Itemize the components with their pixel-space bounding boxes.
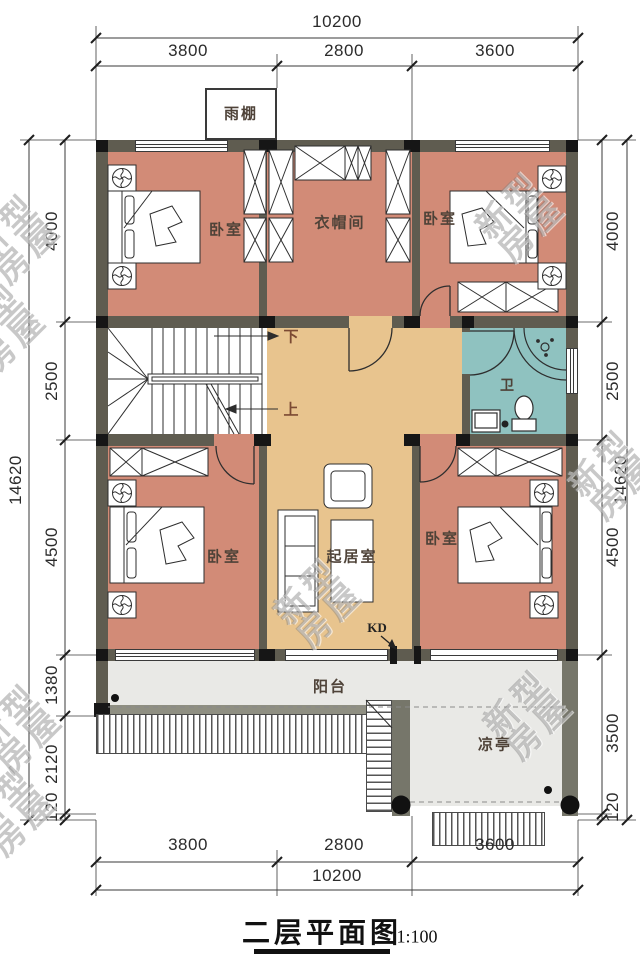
wall-int-bl-living xyxy=(259,434,267,661)
hall-living-connector-floor xyxy=(267,434,412,446)
wall-mid1-a xyxy=(96,316,267,328)
wall-left-balcony-stub xyxy=(96,661,108,705)
wall-int-living-br xyxy=(412,434,420,661)
column xyxy=(566,649,578,661)
sliding-window-bottom-right xyxy=(430,649,558,661)
column xyxy=(96,434,108,446)
bathroom-floor xyxy=(470,328,566,434)
kd-door-jamb xyxy=(390,646,397,664)
column xyxy=(259,316,275,328)
bedroom-bl-door-opening xyxy=(214,434,254,446)
wall-mid2-a xyxy=(96,434,214,446)
kd-door-jamb xyxy=(414,646,421,664)
column xyxy=(566,140,578,152)
stair-floor xyxy=(108,328,267,434)
dim-top-seg-2: 3600 xyxy=(475,41,515,61)
dim-top-seg-0: 3800 xyxy=(168,41,208,61)
stair-down-label: 下 xyxy=(283,326,298,347)
drawing-title: 二层平面图 xyxy=(242,911,402,951)
stair-up-label: 上 xyxy=(283,399,298,420)
wall-left xyxy=(96,140,108,661)
column xyxy=(96,140,108,152)
cloakroom-label: 衣帽间 xyxy=(314,212,365,233)
wall-int-tl-cloak xyxy=(259,140,267,328)
watermark: 新型房屋 xyxy=(0,190,68,291)
column xyxy=(96,316,108,328)
balcony-label: 阳台 xyxy=(313,676,347,697)
pavilion-wall-right xyxy=(562,661,578,816)
column xyxy=(566,434,578,446)
pavilion-steps xyxy=(366,700,392,812)
bedroom-bottom-left-label: 卧室 xyxy=(207,546,241,567)
dim-top-seg-1: 2800 xyxy=(324,41,364,61)
balcony-railing xyxy=(96,714,392,754)
window-top-left xyxy=(135,140,228,152)
dim-left-overall: 14620 xyxy=(6,455,26,505)
title-underline xyxy=(254,949,390,954)
bedroom-top-right-label: 卧室 xyxy=(423,208,457,229)
dim-right-seg-4: 120 xyxy=(603,792,623,822)
sliding-door-living xyxy=(285,649,388,661)
column xyxy=(259,140,277,152)
wall-mid2-b xyxy=(456,434,578,446)
dim-right-seg-2: 4500 xyxy=(603,527,623,567)
dim-right-seg-0: 4000 xyxy=(603,211,623,251)
bedroom-bottom-right-label: 卧室 xyxy=(425,528,459,549)
drawing-scale: 1:100 xyxy=(396,927,437,948)
dim-bottom-seg-1: 2800 xyxy=(324,835,364,855)
column xyxy=(404,434,420,446)
dim-top-total: 10200 xyxy=(312,12,362,32)
column xyxy=(259,649,275,661)
kd-label: KD xyxy=(367,620,387,636)
column xyxy=(96,649,108,661)
bedroom-tr-door-opening xyxy=(420,316,450,328)
column xyxy=(456,434,470,446)
pavilion-wall-left xyxy=(392,700,410,816)
column xyxy=(254,434,271,446)
dim-bottom-seg-0: 3800 xyxy=(168,835,208,855)
window-bathroom xyxy=(566,348,578,394)
dim-bottom-seg-2: 3600 xyxy=(475,835,515,855)
bathroom-door-opening xyxy=(462,332,470,374)
floor-plan: 雨棚 卧室 衣帽间 卧室 卫 起居室 卧室 卧室 阳台 凉亭 下 上 KD 10… xyxy=(0,0,640,963)
canopy-label: 雨棚 xyxy=(224,103,258,124)
dim-left-seg-1: 2500 xyxy=(42,361,62,401)
dim-left-seg-2: 4500 xyxy=(42,527,62,567)
dim-right-seg-3: 3500 xyxy=(603,713,623,753)
wall-int-cloak-tr xyxy=(412,140,420,328)
window-top-right xyxy=(455,140,550,152)
cloakroom-door-opening xyxy=(349,316,392,328)
bedroom-br-door-opening xyxy=(420,434,456,446)
window-bottom-left xyxy=(115,649,255,661)
bathroom-label: 卫 xyxy=(500,375,516,395)
dim-right-seg-1: 2500 xyxy=(603,361,623,401)
column xyxy=(566,316,578,328)
bedroom-top-left-label: 卧室 xyxy=(209,219,243,240)
column xyxy=(404,316,420,328)
column xyxy=(404,140,420,152)
dim-bottom-total: 10200 xyxy=(312,866,362,886)
column xyxy=(462,316,474,328)
wall-mid1-b xyxy=(267,316,349,328)
